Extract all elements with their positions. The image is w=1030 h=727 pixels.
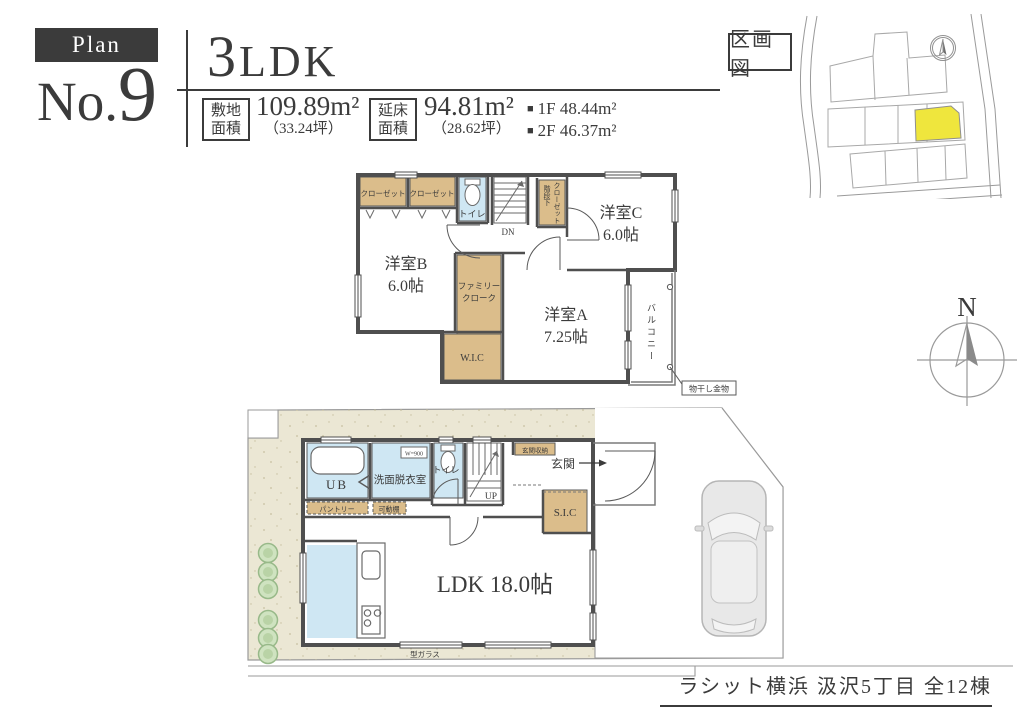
wic-label: W.I.C: [460, 353, 484, 364]
room-b-name: 洋室B: [385, 255, 428, 273]
toilet-fixture-2f: [465, 179, 480, 206]
floor-2f-area: ■2F 46.37m²: [527, 120, 616, 142]
layout-suffix: LDK: [239, 37, 338, 86]
site-area-value-wrap: 109.89m² （33.24坪）: [256, 93, 359, 138]
layout-digit: 3: [207, 24, 239, 89]
room-a-size: 7.25帖: [544, 328, 588, 346]
balcony-label: バルコニー: [646, 303, 656, 363]
room-a-name: 洋室A: [544, 306, 588, 324]
closet-1-label: クローゼット: [361, 188, 406, 198]
plot-map-roads: [800, 14, 1002, 199]
room-c-name: 洋室C: [600, 204, 643, 222]
plan-number: No.9: [22, 54, 172, 142]
project-name: ラシット横浜 汲沢5丁目 全12棟: [660, 670, 992, 707]
entrance-label: 玄関: [551, 456, 575, 471]
compass-needle: [967, 323, 978, 366]
washroom-label: 洗面脱衣室: [374, 473, 427, 486]
stairs-down-label: DN: [502, 227, 515, 237]
stair-closet-label-1: 階段下: [543, 184, 551, 207]
site-area-value: 109.89m²: [256, 93, 359, 120]
floor-area-tsubo: （28.62坪）: [424, 120, 514, 138]
site-area-tsubo: （33.24坪）: [256, 120, 359, 138]
site-notch: [248, 410, 278, 438]
square-bullet-icon: ■: [527, 103, 534, 115]
floor-area-label-1: 延床: [378, 102, 408, 120]
toilet-2f-label: トイレ: [458, 209, 485, 219]
entrance-storage-label: 玄関収納: [522, 446, 548, 455]
closet-2-label: クローゼット: [410, 188, 455, 198]
stairs-2f: [494, 177, 526, 223]
bathtub: [311, 447, 364, 474]
site-area-label-2: 面積: [211, 120, 241, 138]
unit-bath-label: UB: [326, 477, 348, 492]
site-area-label-box: 敷地 面積: [202, 98, 250, 141]
movable-shelf-label: 可動棚: [379, 505, 400, 514]
floor-breakdown: ■1F 48.44m² ■2F 46.37m²: [527, 98, 616, 142]
pantry-label: パントリー: [319, 506, 354, 514]
plot-map-title-box: 区画図: [728, 33, 792, 71]
kitchen-counter: [357, 543, 385, 638]
plot-map-sketch: [795, 14, 1017, 199]
layout-title: 3LDK: [207, 22, 338, 97]
flyer-page: Plan No.9 3LDK 敷地 面積 109.89m² （33.24坪） 延…: [0, 0, 1030, 727]
plan-no-prefix: No.: [37, 71, 118, 132]
square-bullet-icon: ■: [527, 125, 534, 137]
counter-width-label: W=900: [405, 452, 423, 458]
closet-pipe-marks: [366, 210, 450, 218]
stairs-up-label: UP: [485, 492, 497, 502]
floor2-plan: クローゼット クローゼット トイレ DN 階段下 クローゼット 洋室C 6.0帖…: [350, 165, 745, 405]
room-b-size: 6.0帖: [388, 277, 424, 295]
toilet-1f-label: トイレ: [432, 465, 459, 475]
family-cloak-label-1: ファミリー: [458, 281, 501, 291]
ldk-label: LDK 18.0帖: [437, 572, 553, 597]
stair-closet-label-2: クローゼット: [553, 182, 561, 224]
floor1-site-plan: UB 洗面脱衣室 W=900 トイレ UP 玄関収納 玄関 S.I.C パントリ…: [233, 393, 1030, 693]
highlighted-lot: [915, 106, 961, 141]
floor-area-value-wrap: 94.81m² （28.62坪）: [424, 93, 514, 138]
plan-no-digit: 9: [118, 50, 157, 137]
glass-note-label: 型ガラス: [410, 649, 440, 659]
floor-area-value: 94.81m²: [424, 93, 514, 120]
floor-area-label-box: 延床 面積: [369, 98, 417, 141]
site-area-label-1: 敷地: [211, 102, 241, 120]
room-c-size: 6.0帖: [603, 226, 639, 244]
car-top-view: [695, 481, 773, 636]
floor-area-label-2: 面積: [378, 120, 408, 138]
family-cloak-label-2: クローク: [462, 293, 496, 303]
plot-map-title: 区画図: [730, 23, 790, 81]
hanger-note-label: 物干し金物: [689, 384, 729, 394]
plot-map-compass-icon: [931, 36, 956, 61]
floor-1f-area: ■1F 48.44m²: [527, 98, 616, 120]
sic-label: S.I.C: [554, 507, 577, 519]
